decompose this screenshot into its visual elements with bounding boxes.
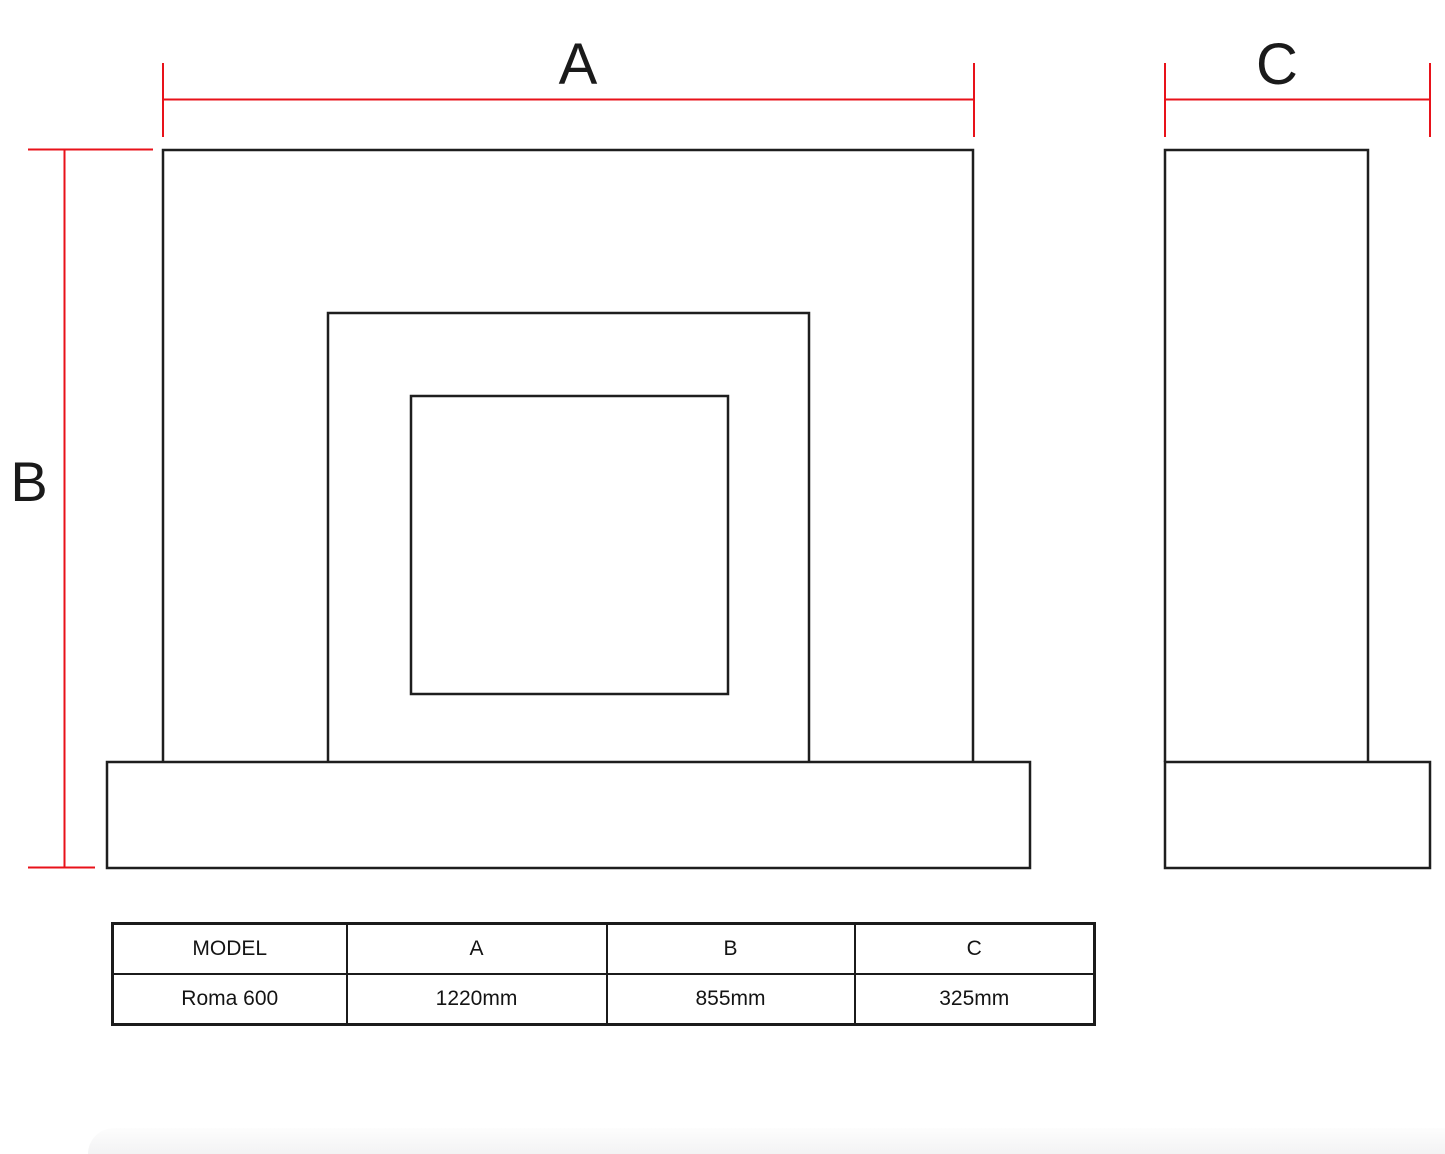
- bottom-card-edge: [88, 1128, 1445, 1154]
- dimension-c: C: [1165, 32, 1430, 137]
- spec-value-model: Roma 600: [113, 974, 347, 1025]
- spec-header-c: C: [855, 924, 1095, 975]
- spec-value-a: 1220mm: [347, 974, 607, 1025]
- spec-header-b: B: [607, 924, 855, 975]
- spec-header-a: A: [347, 924, 607, 975]
- dimension-b: B: [10, 149, 153, 868]
- side-hearth-outline: [1165, 762, 1430, 868]
- spec-header-model: MODEL: [113, 924, 347, 975]
- spec-table-header-row: MODEL A B C: [113, 924, 1095, 975]
- front-surround-outline: [163, 150, 973, 762]
- spec-table-value-row: Roma 600 1220mm 855mm 325mm: [113, 974, 1095, 1025]
- spec-value-c: 325mm: [855, 974, 1095, 1025]
- spec-value-b: 855mm: [607, 974, 855, 1025]
- front-view: [107, 150, 1030, 868]
- dim-a-label: A: [559, 32, 598, 97]
- firebox-opening-outline: [411, 396, 728, 694]
- dim-c-label: C: [1256, 32, 1298, 97]
- side-view: [1165, 150, 1430, 868]
- side-panel-outline: [1165, 150, 1368, 762]
- spec-table: MODEL A B C Roma 600 1220mm 855mm 325mm: [111, 922, 1096, 1026]
- dim-b-label: B: [10, 450, 47, 513]
- technical-drawing-page: A C B: [0, 0, 1445, 1154]
- front-hearth-outline: [107, 762, 1030, 868]
- dimension-a: A: [163, 32, 974, 137]
